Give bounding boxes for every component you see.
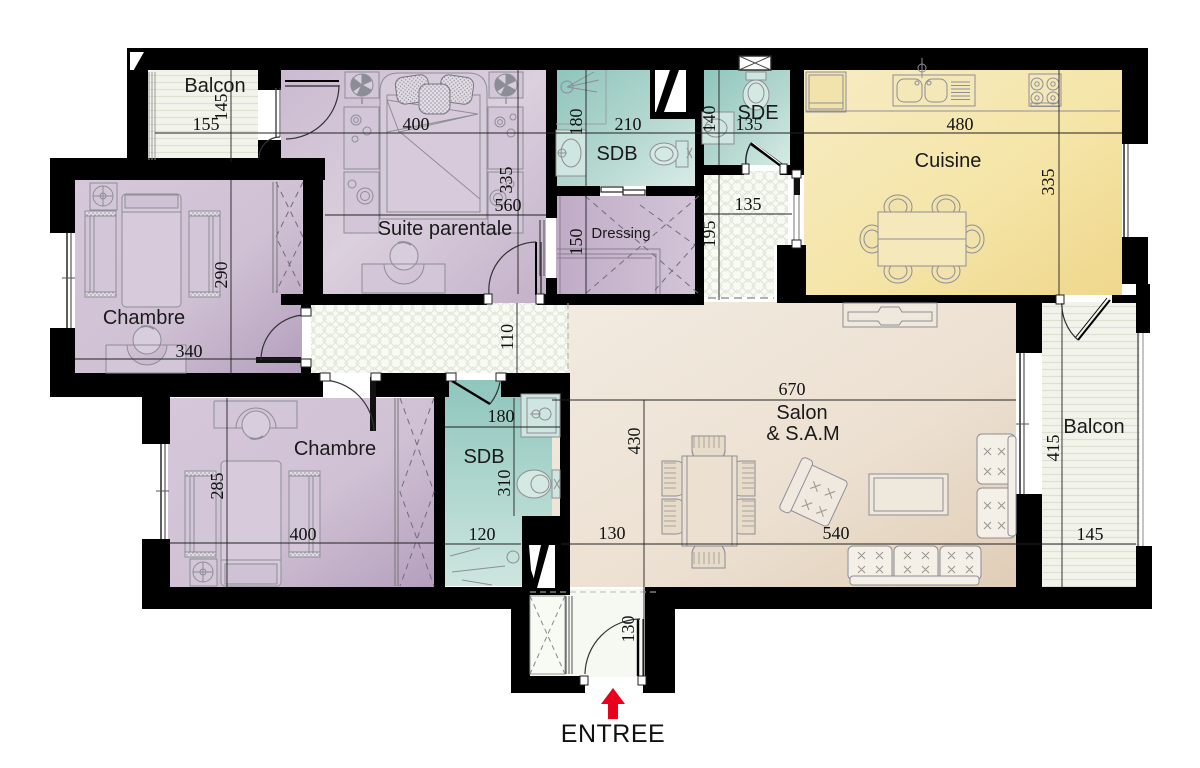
svg-text:400: 400: [403, 114, 430, 134]
svg-text:135: 135: [735, 194, 762, 214]
svg-text:430: 430: [624, 428, 644, 455]
svg-text:Suite parentale: Suite parentale: [378, 218, 513, 240]
svg-text:130: 130: [599, 523, 626, 543]
svg-text:180: 180: [488, 406, 515, 426]
svg-text:285: 285: [207, 473, 227, 500]
svg-text:Dressing: Dressing: [591, 225, 650, 242]
svg-text:210: 210: [615, 114, 642, 134]
svg-text:Salon: Salon: [776, 402, 827, 424]
svg-text:SDB: SDB: [463, 446, 504, 468]
svg-text:110: 110: [497, 324, 517, 350]
svg-text:480: 480: [947, 114, 974, 134]
svg-text:145: 145: [211, 94, 231, 121]
svg-text:120: 120: [469, 524, 496, 544]
svg-text:560: 560: [495, 195, 522, 215]
svg-text:ENTREE: ENTREE: [561, 720, 665, 748]
svg-text:130: 130: [618, 616, 638, 643]
svg-text:290: 290: [211, 262, 231, 289]
svg-text:135: 135: [736, 114, 763, 134]
svg-text:Cuisine: Cuisine: [915, 150, 982, 172]
svg-text:SDB: SDB: [596, 143, 637, 165]
svg-text:140: 140: [699, 106, 719, 133]
svg-text:540: 540: [823, 523, 850, 543]
svg-text:150: 150: [566, 229, 586, 256]
svg-text:195: 195: [699, 221, 719, 248]
svg-text:& S.A.M: & S.A.M: [766, 423, 839, 445]
svg-text:Balcon: Balcon: [1063, 416, 1124, 438]
svg-text:180: 180: [566, 109, 586, 136]
svg-text:340: 340: [176, 341, 203, 361]
svg-text:670: 670: [779, 379, 806, 399]
svg-text:Chambre: Chambre: [103, 307, 185, 329]
svg-text:335: 335: [1038, 169, 1058, 196]
svg-text:310: 310: [494, 470, 514, 497]
svg-text:415: 415: [1043, 435, 1063, 462]
svg-text:Chambre: Chambre: [294, 438, 376, 460]
svg-text:145: 145: [1077, 524, 1104, 544]
svg-text:400: 400: [290, 524, 317, 544]
svg-text:335: 335: [496, 167, 516, 194]
